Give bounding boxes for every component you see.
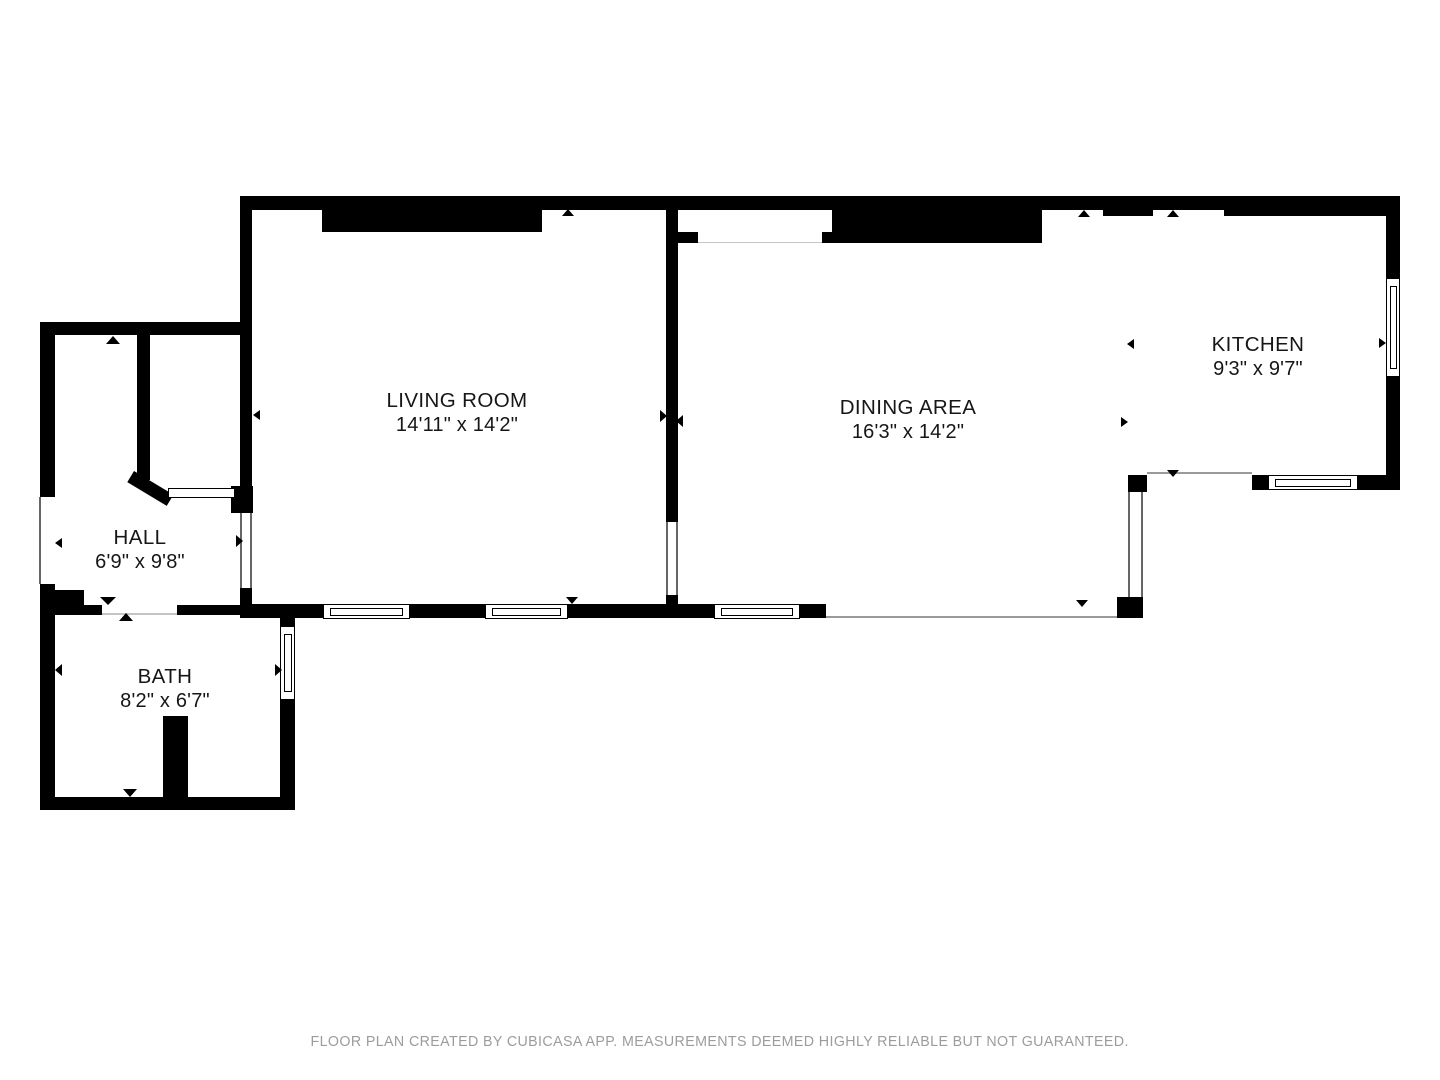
direction-arrow-up [1167, 210, 1179, 217]
wall-diagonal [127, 471, 173, 506]
wall [1103, 210, 1153, 216]
room-dimensions: 14'11" x 14'2" [386, 413, 527, 438]
direction-arrow-up [106, 336, 120, 344]
wall [1358, 475, 1400, 490]
wall [677, 232, 698, 243]
direction-arrow-up [562, 209, 574, 216]
wall [163, 716, 188, 797]
wall [1117, 597, 1143, 618]
room-label-kitchen: KITCHEN9'3" x 9'7" [1212, 332, 1305, 382]
wall [800, 604, 826, 618]
room-dimensions: 6'9" x 9'8" [95, 550, 185, 575]
direction-arrow-down [100, 597, 116, 605]
direction-arrow-left [253, 410, 260, 420]
wall [1386, 210, 1400, 278]
window-pane [1275, 479, 1351, 487]
direction-arrow-up [119, 613, 133, 621]
direction-arrow-down [1076, 600, 1088, 607]
wall [240, 196, 1400, 210]
wall [322, 210, 542, 232]
direction-arrow-right [236, 535, 243, 547]
room-label-living-room: LIVING ROOM14'11" x 14'2" [386, 388, 527, 438]
boundary-line [666, 522, 668, 595]
direction-arrow-left [1127, 339, 1134, 349]
wall [568, 604, 714, 618]
wall [40, 322, 55, 497]
wall [137, 335, 150, 480]
room-dimensions: 9'3" x 9'7" [1212, 357, 1305, 382]
window-pane [330, 608, 403, 616]
wall [666, 210, 678, 522]
window-pane [284, 634, 292, 692]
room-name: HALL [95, 525, 185, 550]
direction-arrow-left [55, 538, 62, 548]
boundary-line [102, 613, 177, 615]
window [280, 626, 295, 700]
direction-arrow-left [676, 415, 683, 427]
wall [832, 210, 1042, 243]
direction-arrow-right [275, 664, 282, 676]
wall [55, 605, 102, 615]
wall [55, 590, 84, 605]
wall [1386, 377, 1400, 490]
window-pane [1390, 286, 1397, 369]
direction-arrow-down [1167, 470, 1179, 477]
direction-arrow-right [1121, 417, 1128, 427]
wall [40, 322, 252, 335]
room-label-bath: BATH8'2" x 6'7" [120, 664, 210, 714]
room-name: DINING AREA [840, 395, 977, 420]
wall [177, 605, 240, 615]
room-dimensions: 8'2" x 6'7" [120, 689, 210, 714]
wall [40, 584, 55, 810]
boundary-line [698, 242, 822, 244]
wall [822, 232, 832, 243]
wall [666, 595, 678, 604]
boundary-line [240, 513, 242, 588]
direction-arrow-right [1379, 338, 1386, 348]
window [1386, 278, 1400, 377]
room-label-dining-area: DINING AREA16'3" x 14'2" [840, 395, 977, 445]
wall [410, 604, 485, 618]
wall [1224, 210, 1386, 216]
wall [1128, 475, 1147, 492]
wall [280, 699, 295, 810]
direction-arrow-left [55, 664, 62, 676]
boundary-line [1147, 472, 1252, 474]
floor-plan: FLOOR PLAN CREATED BY CUBICASA APP. MEAS… [0, 0, 1440, 1080]
room-name: KITCHEN [1212, 332, 1305, 357]
direction-arrow-up [1078, 210, 1090, 217]
window-pane [721, 608, 793, 616]
boundary-line [1128, 492, 1130, 597]
boundary-line [39, 497, 41, 584]
footer-note: FLOOR PLAN CREATED BY CUBICASA APP. MEAS… [0, 1033, 1440, 1050]
boundary-line [1141, 492, 1143, 597]
boundary-line [826, 616, 1117, 618]
footer-note-text: FLOOR PLAN CREATED BY CUBICASA APP. MEAS… [311, 1033, 1129, 1050]
boundary-line [250, 513, 252, 588]
wall [280, 613, 295, 627]
room-dimensions: 16'3" x 14'2" [840, 420, 977, 445]
window [714, 604, 800, 619]
boundary-line [676, 522, 678, 595]
direction-arrow-down [123, 789, 137, 797]
wall [1252, 475, 1268, 490]
window [485, 604, 568, 619]
room-label-hall: HALL6'9" x 9'8" [95, 525, 185, 575]
window-pane [492, 608, 561, 616]
wall [240, 210, 252, 513]
direction-arrow-right [660, 410, 667, 422]
room-name: BATH [120, 664, 210, 689]
wall [240, 588, 252, 604]
direction-arrow-down [566, 597, 578, 604]
window [1268, 475, 1358, 490]
window [323, 604, 410, 619]
closet-door [168, 488, 235, 498]
wall [40, 797, 295, 810]
room-name: LIVING ROOM [386, 388, 527, 413]
